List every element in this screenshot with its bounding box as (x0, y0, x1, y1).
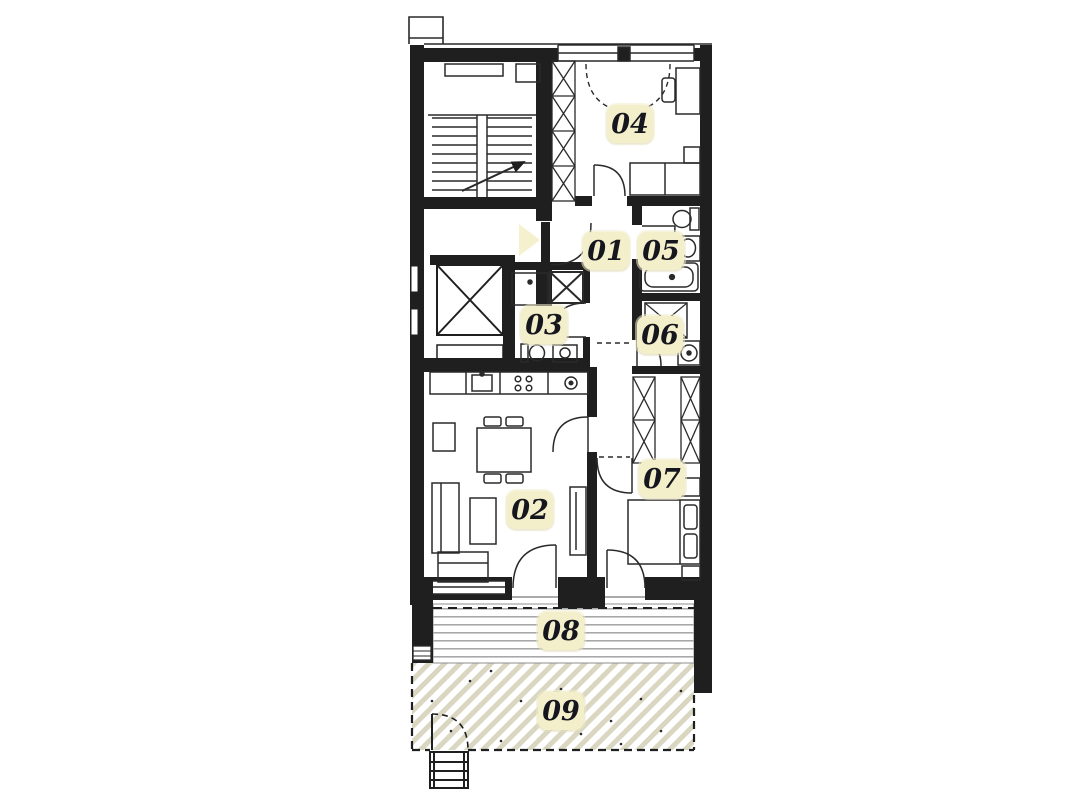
room-number: 04 (611, 109, 649, 140)
toilet-icon (673, 211, 691, 228)
duct-column (552, 61, 575, 201)
tv-sideboard (570, 487, 586, 555)
room-label-02: 02 (507, 491, 553, 529)
chair (506, 474, 523, 483)
garden-steps (430, 752, 468, 788)
room-label-03: 03 (521, 306, 567, 344)
stair-direction-arrow (462, 162, 524, 191)
kitchen-counter (430, 372, 588, 394)
room-number: 07 (643, 464, 681, 495)
room-number: 01 (587, 236, 625, 267)
dining-table (477, 428, 531, 472)
stair-treads (432, 118, 532, 190)
desk-chair (662, 78, 675, 102)
floor-plan-drawing (0, 0, 1080, 804)
kitchen-sink (472, 375, 492, 391)
pillow (684, 534, 697, 558)
walls (410, 45, 712, 693)
room-label-04: 04 (607, 105, 653, 143)
chair (484, 417, 501, 426)
cabinet-small (684, 147, 700, 163)
room-number: 03 (525, 310, 563, 341)
room-label-08: 08 (538, 612, 584, 650)
sofa-vertical (432, 483, 459, 553)
room-label-09: 09 (538, 692, 584, 730)
desk (676, 68, 700, 114)
stairwell (428, 64, 540, 197)
coffee-table (470, 498, 496, 544)
room-label-07: 07 (639, 460, 685, 498)
entrance-door-leaf (541, 222, 550, 266)
elevator-shaft (437, 265, 503, 363)
room-number: 06 (641, 320, 679, 351)
room-label-06: 06 (637, 316, 683, 354)
room-number: 05 (642, 236, 680, 267)
room-number: 09 (542, 696, 580, 727)
window-bottom (433, 581, 505, 594)
pillow (684, 505, 697, 529)
chair (506, 417, 523, 426)
room-label-05: 05 (638, 232, 684, 270)
bed (628, 500, 700, 564)
stove-burners (515, 376, 532, 391)
ac-unit (413, 646, 431, 660)
room-number: 08 (542, 616, 580, 647)
armchair (433, 423, 455, 451)
entrance-arrow-icon (519, 224, 540, 256)
wardrobe-left (633, 377, 655, 463)
chair (484, 474, 501, 483)
room-label-01: 01 (583, 232, 629, 270)
window-top (558, 45, 694, 61)
roof-outline (409, 17, 712, 44)
entrance (519, 222, 591, 266)
floor-plan-stage: 01 02 03 04 05 06 07 08 09 (0, 0, 1080, 804)
wardrobe-right (681, 377, 700, 463)
room-number: 02 (511, 495, 549, 526)
